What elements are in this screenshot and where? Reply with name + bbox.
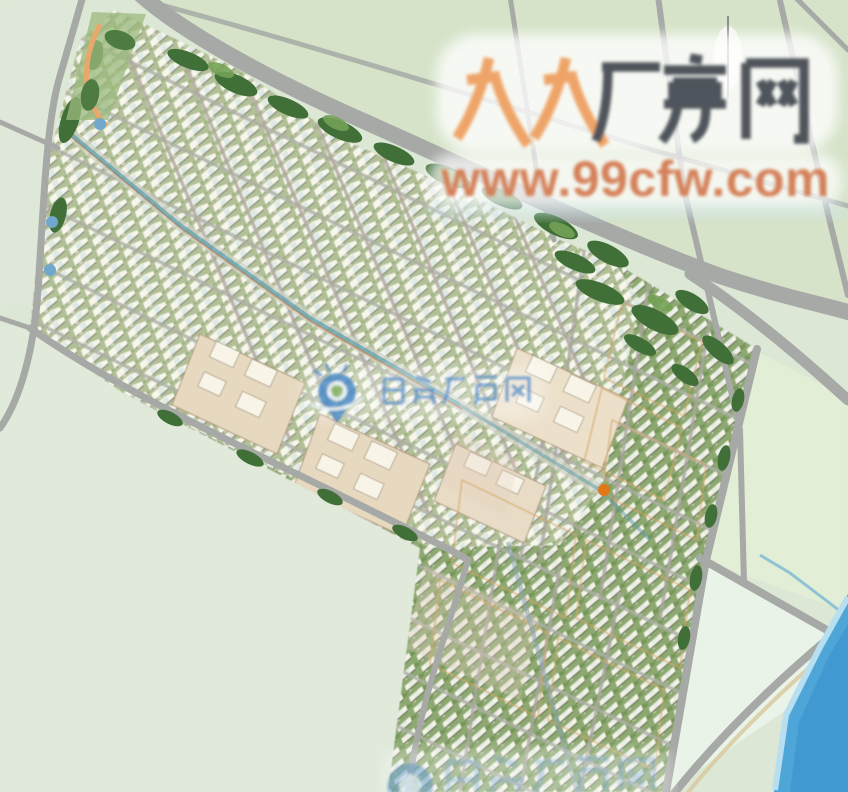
svg-text:www.99cfw.com: www.99cfw.com — [440, 151, 830, 207]
